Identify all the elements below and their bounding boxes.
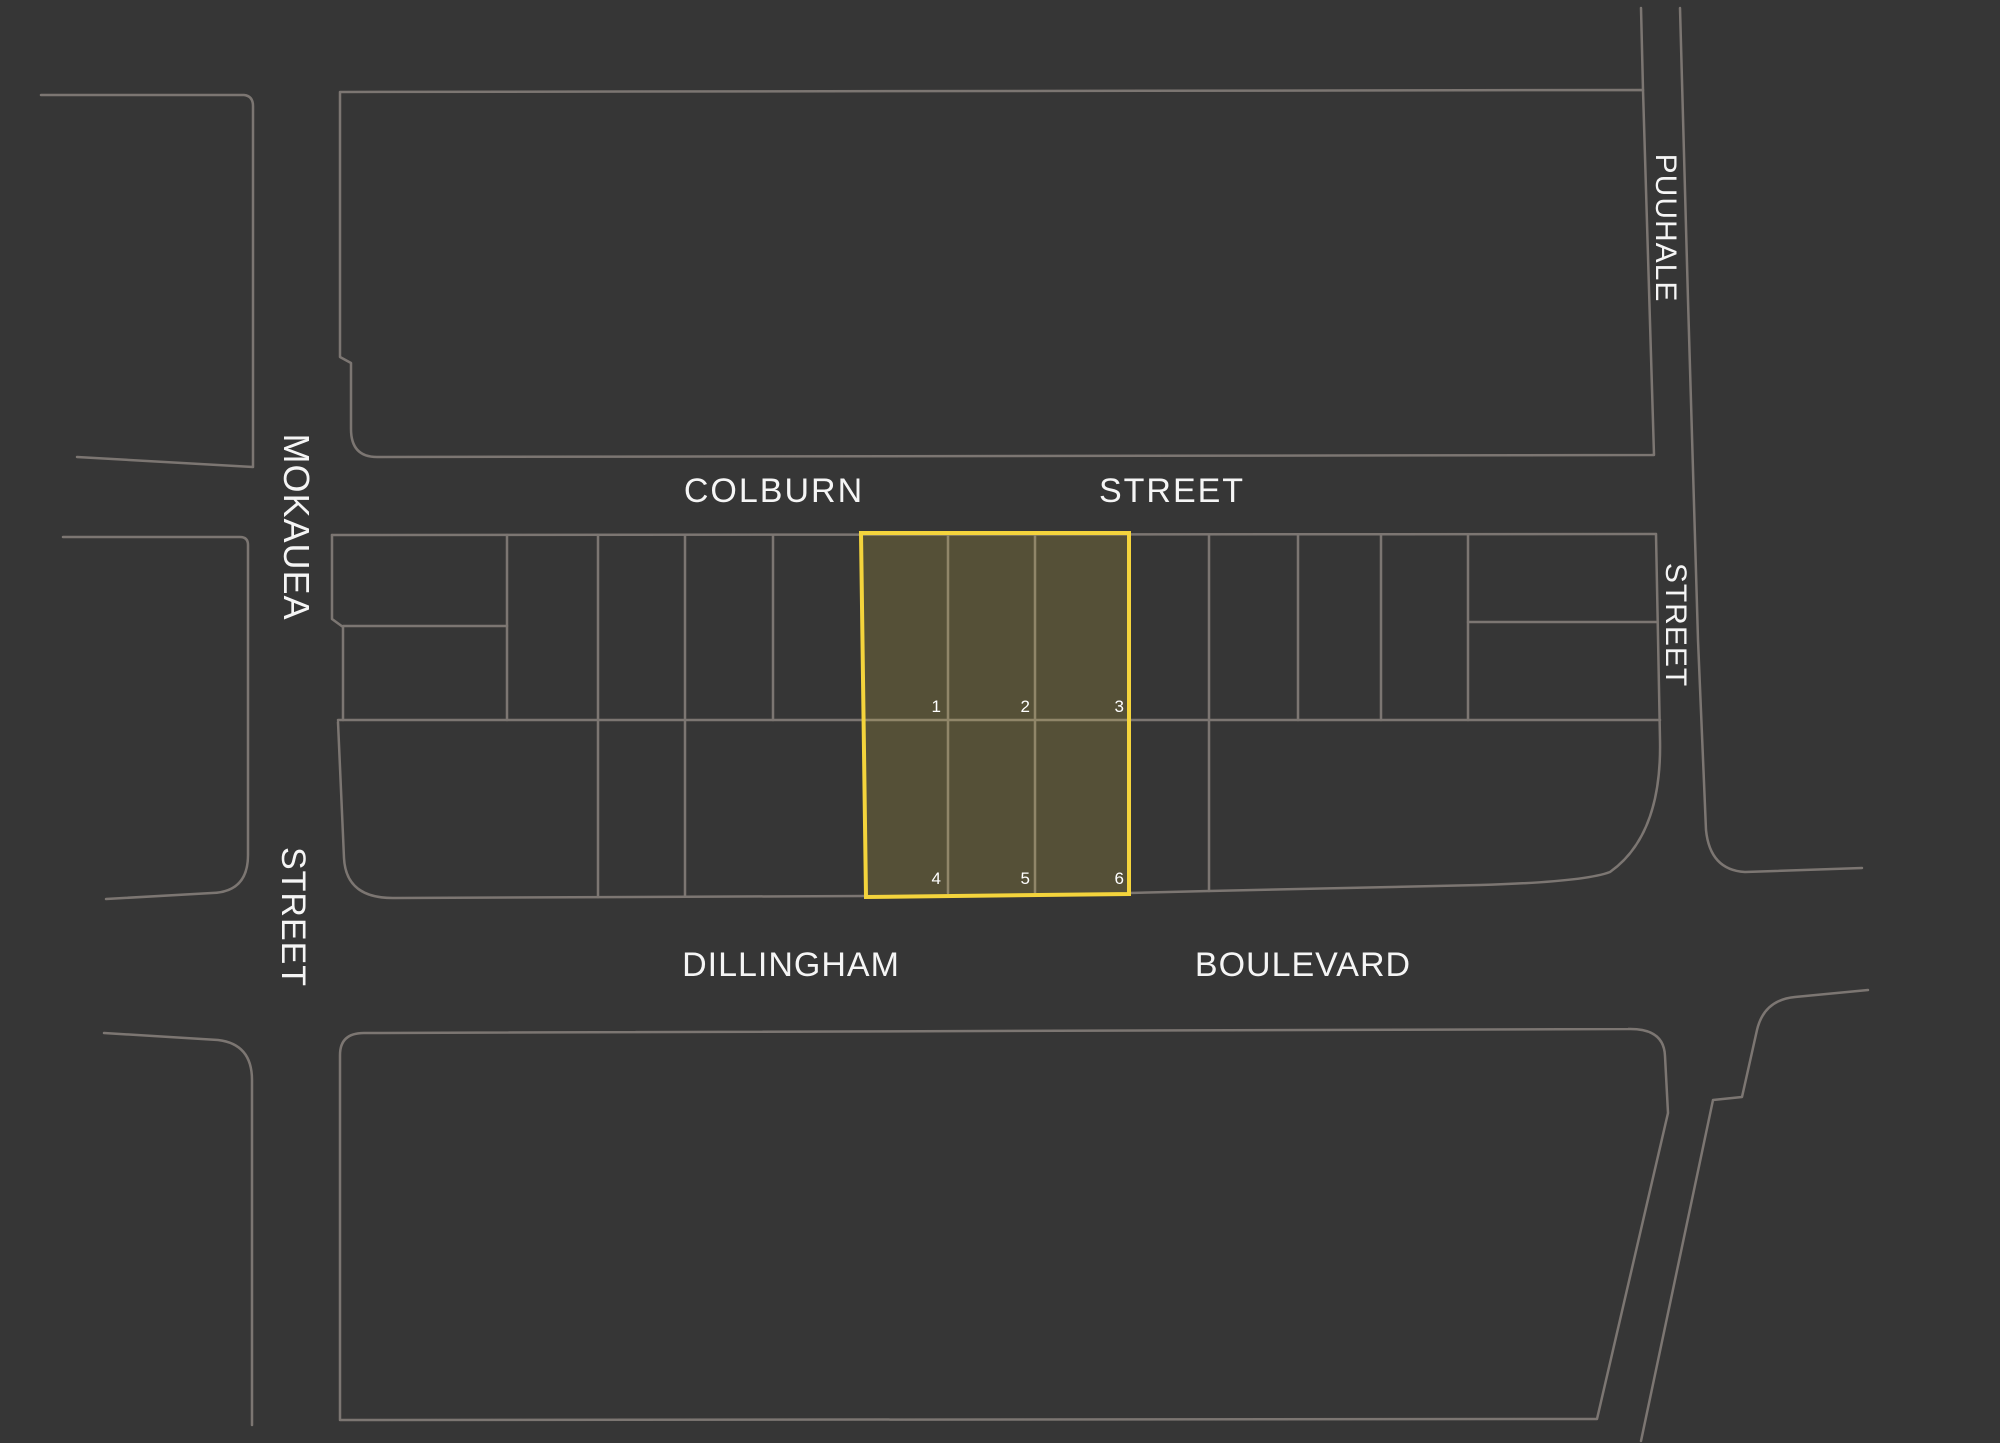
mokauea-name-label: MOKAUEA <box>276 433 317 620</box>
plat-map-canvas: 1 2 3 4 5 6 COLBURN STREET DILLINGHAM BO… <box>0 0 2000 1443</box>
middle-band-left-edge <box>332 535 343 720</box>
puuhale-type-label: STREET <box>1659 563 1692 687</box>
lot-number-3: 3 <box>1115 697 1124 716</box>
street-label-dillingham: DILLINGHAM BOULEVARD <box>682 946 1411 984</box>
block-upper-left <box>41 95 253 467</box>
parcel-fill <box>861 533 1129 897</box>
dillingham-type-label: BOULEVARD <box>1195 946 1411 984</box>
lot-number-2: 2 <box>1021 697 1030 716</box>
colburn-type-label: STREET <box>1099 472 1245 510</box>
puuhale-east-edge <box>1680 8 1862 872</box>
plat-map: 1 2 3 4 5 6 COLBURN STREET DILLINGHAM BO… <box>0 0 2000 1443</box>
block-outlines-south <box>104 1029 1668 1425</box>
puuhale-west-edge-top <box>1641 8 1643 90</box>
lot-number-5: 5 <box>1021 869 1030 888</box>
highlighted-parcel-group[interactable]: 1 2 3 4 5 6 <box>861 533 1129 897</box>
mokauea-type-label: STREET <box>274 847 312 987</box>
block-middle-far-left <box>63 537 248 899</box>
block-upper-main <box>340 90 1654 457</box>
block-lower-main <box>340 1029 1668 1420</box>
block-outlines-north <box>41 90 1654 467</box>
puuhale-east-edge-south <box>1641 990 1868 1441</box>
lot-number-6: 6 <box>1115 869 1124 888</box>
puuhale-name-label: PUUHALE <box>1649 154 1682 303</box>
street-label-colburn: COLBURN STREET <box>684 472 1245 510</box>
lot-number-1: 1 <box>932 697 941 716</box>
street-label-mokauea: MOKAUEA STREET <box>274 433 317 987</box>
block-lower-left <box>104 1033 252 1425</box>
middle-band-bottom-edge <box>338 722 866 898</box>
lot-number-4: 4 <box>932 869 941 888</box>
dillingham-name-label: DILLINGHAM <box>682 946 900 984</box>
colburn-name-label: COLBURN <box>684 472 864 510</box>
